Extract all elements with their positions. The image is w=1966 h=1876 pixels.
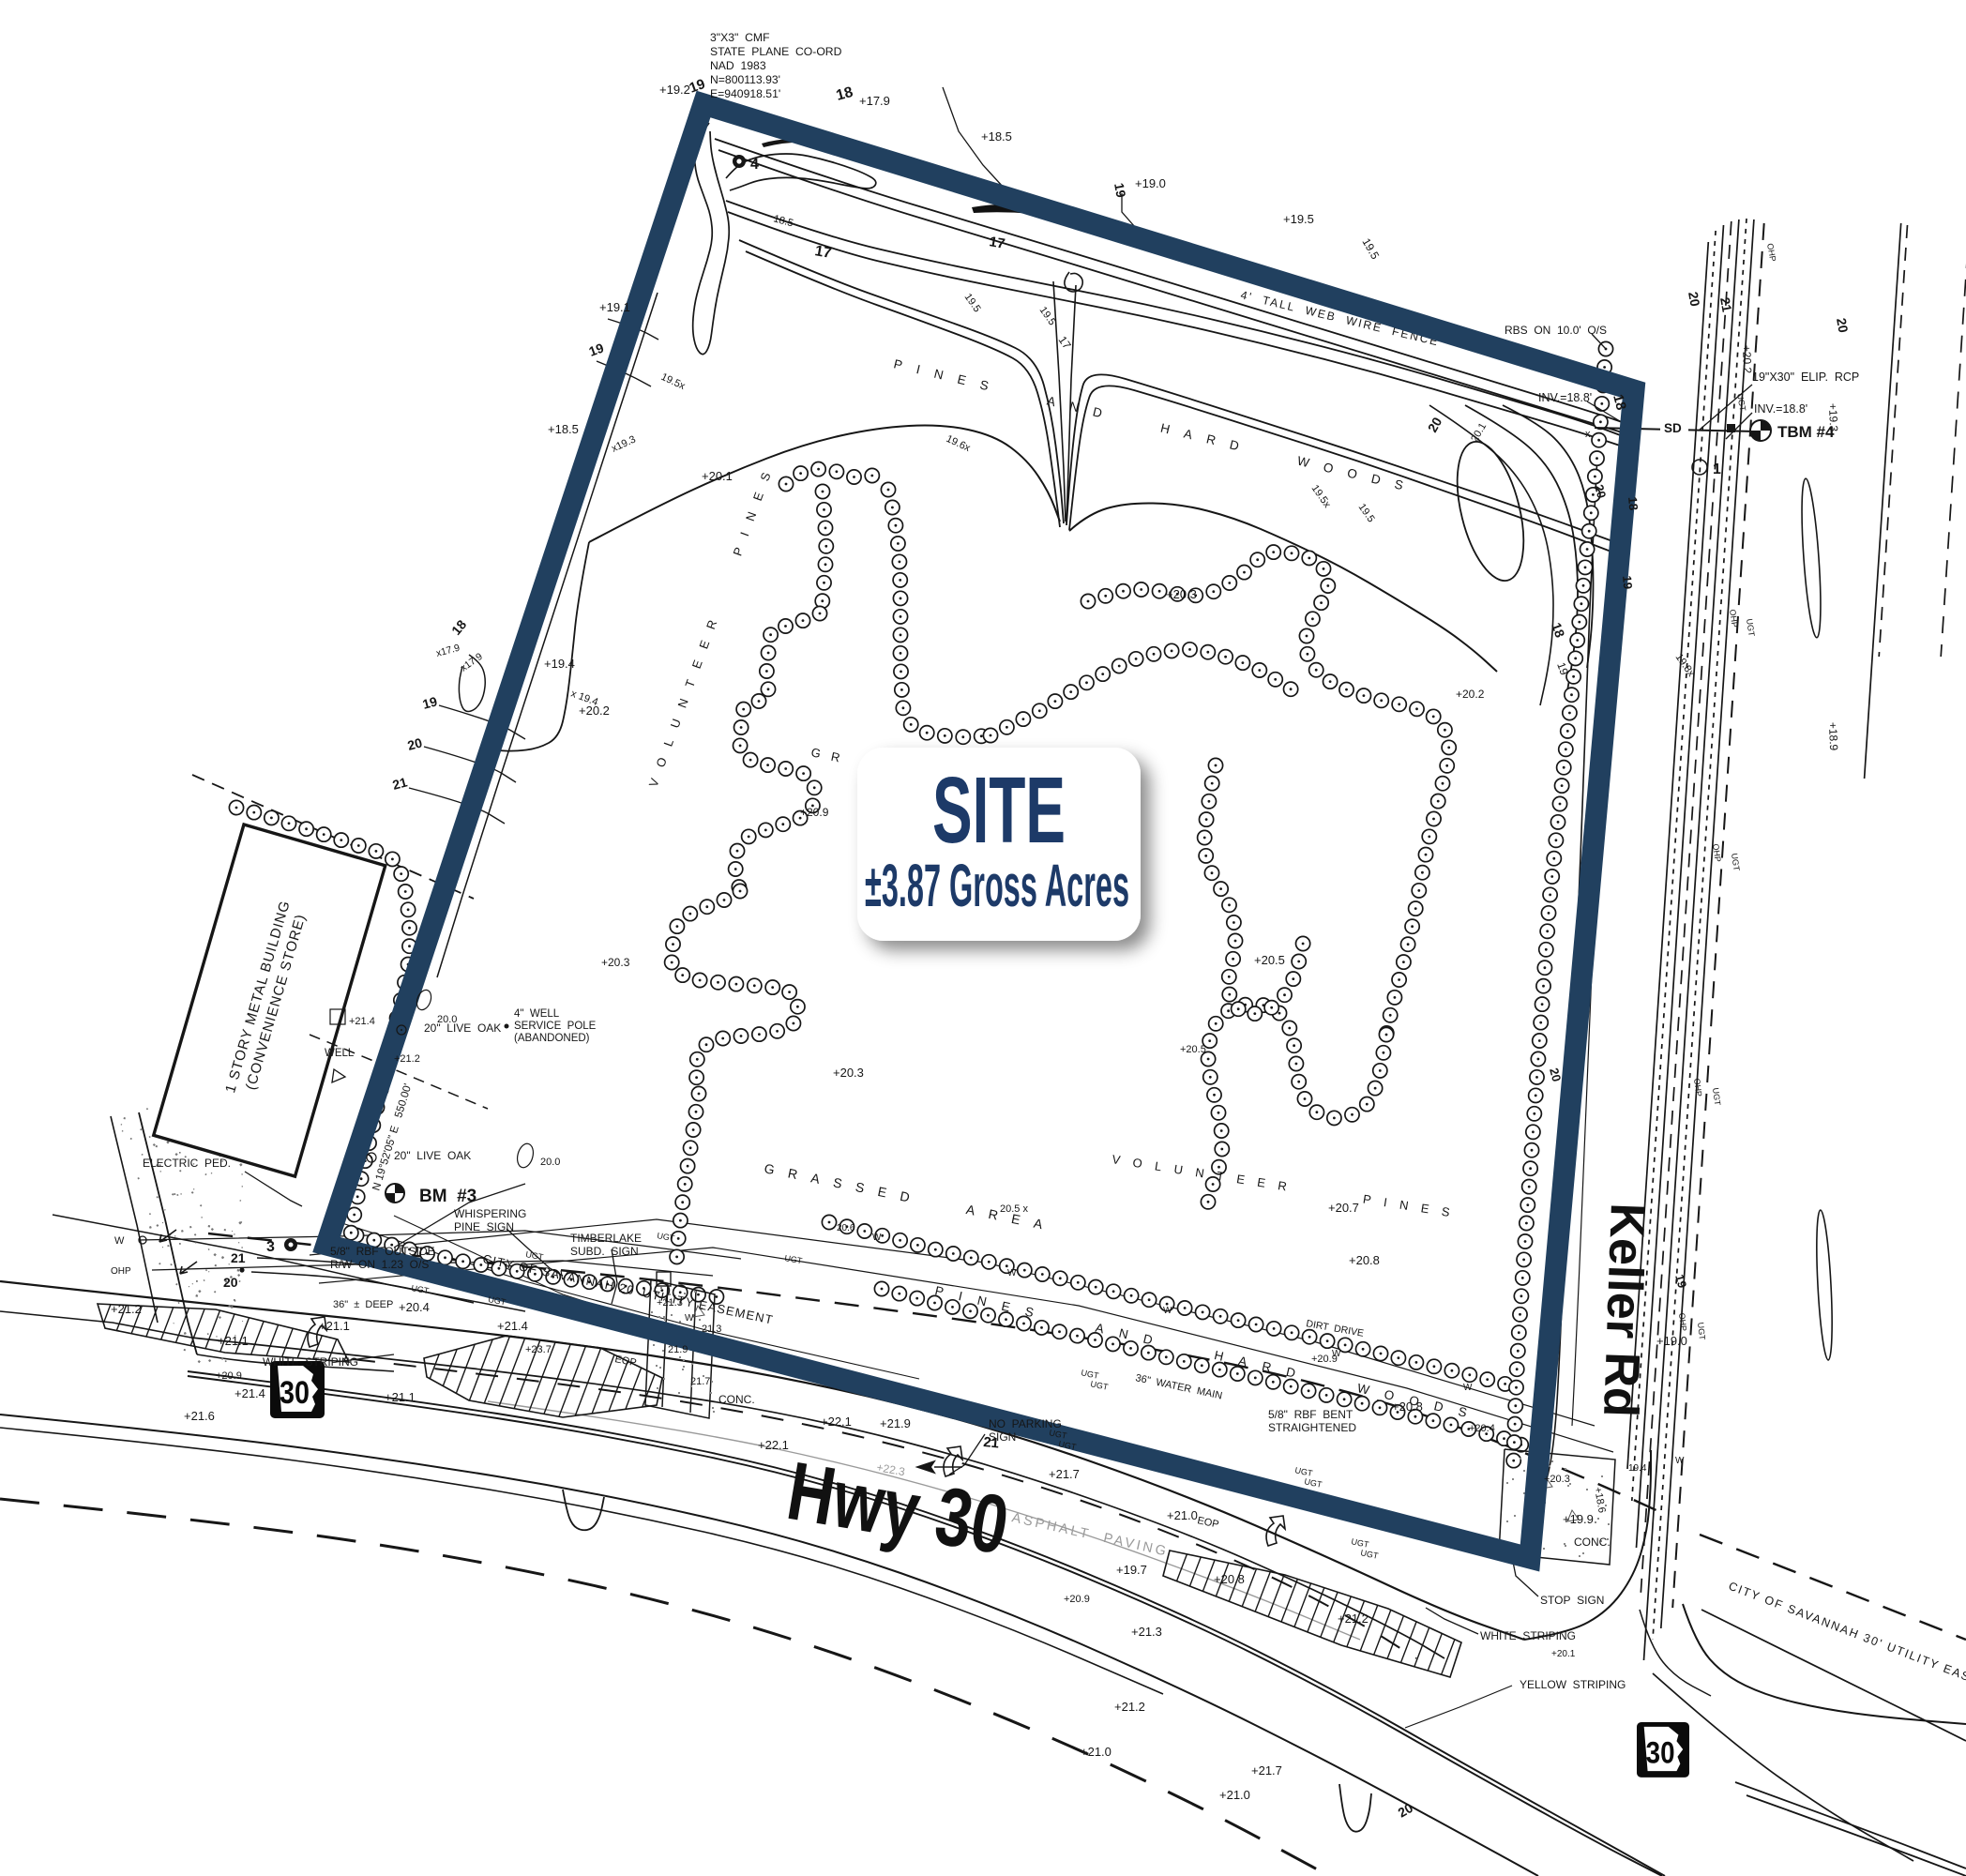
svg-text:+19.2: +19.2 [659, 83, 690, 97]
svg-text:21.7: 21.7 [690, 1376, 710, 1387]
svg-text:+20.3: +20.3 [833, 1066, 864, 1080]
svg-text:20.6: 20.6 [837, 1223, 855, 1233]
svg-text:+21.0: +21.0 [1167, 1508, 1198, 1522]
svg-text:+20.2: +20.2 [1740, 345, 1754, 374]
svg-text:ELECTRIC PED.: ELECTRIC PED. [143, 1157, 231, 1170]
svg-text:+19.3: +19.3 [1826, 403, 1840, 432]
svg-text:N=800113.93': N=800113.93' [710, 73, 780, 86]
svg-text:+20.3: +20.3 [1166, 587, 1197, 601]
svg-text:NAD 1983: NAD 1983 [710, 59, 766, 72]
svg-text:+20.8: +20.8 [1392, 1399, 1423, 1414]
svg-text:+21.4: +21.4 [497, 1319, 528, 1333]
svg-text:W: W [1463, 1383, 1473, 1393]
svg-text:20.0: 20.0 [437, 1014, 457, 1025]
svg-text:+18.5: +18.5 [981, 129, 1012, 144]
svg-text:YELLOW STRIPING: YELLOW STRIPING [1520, 1678, 1626, 1691]
svg-text:+21.2: +21.2 [1114, 1700, 1145, 1714]
svg-text:+21.1: +21.1 [319, 1319, 350, 1333]
svg-text:W: W [114, 1235, 125, 1247]
svg-text:+20.4: +20.4 [399, 1300, 430, 1314]
svg-text:CONC.: CONC. [718, 1393, 755, 1406]
svg-text:E=940918.51': E=940918.51' [710, 87, 780, 100]
svg-text:+20.9: +20.9 [1064, 1594, 1090, 1605]
svg-text:20.5 x: 20.5 x [1000, 1203, 1028, 1215]
svg-text:RBS ON 10.0' O/S: RBS ON 10.0' O/S [1505, 324, 1607, 337]
svg-text:+21.3: +21.3 [657, 1297, 683, 1309]
svg-text:W: W [1163, 1306, 1172, 1316]
svg-text:+19.7: +19.7 [1116, 1563, 1147, 1577]
svg-text:STATE PLANE CO-ORD: STATE PLANE CO-ORD [710, 45, 842, 58]
svg-text:19: 19 [1620, 575, 1635, 590]
svg-text:+20.7: +20.7 [1328, 1201, 1359, 1215]
svg-text:INV.=18.8': INV.=18.8' [1754, 402, 1807, 416]
svg-text:21.3: 21.3 [702, 1324, 721, 1335]
svg-text:+21.2: +21.2 [111, 1302, 142, 1316]
svg-text:+21.1: +21.1 [218, 1334, 249, 1348]
svg-text:5/8" RBF OUTSIDE: 5/8" RBF OUTSIDE [330, 1245, 435, 1258]
svg-text:+21.6: +21.6 [184, 1409, 215, 1423]
svg-text:+18.5: +18.5 [548, 422, 579, 436]
svg-text:+21.7: +21.7 [1049, 1467, 1080, 1481]
svg-text:+20.9: +20.9 [800, 806, 829, 819]
svg-text:±3.87 Gross Acres: ±3.87 Gross Acres [865, 852, 1129, 919]
svg-text:(ABANDONED): (ABANDONED) [514, 1033, 590, 1044]
svg-text:19"X30" ELIP. RCP: 19"X30" ELIP. RCP [1752, 371, 1859, 384]
svg-text:+19.4: +19.4 [544, 657, 575, 671]
svg-text:3: 3 [266, 1239, 275, 1255]
svg-text:17: 17 [988, 234, 1006, 252]
svg-text:4" WELL: 4" WELL [514, 1008, 560, 1020]
svg-text:17: 17 [813, 243, 833, 262]
svg-text:30: 30 [280, 1375, 310, 1411]
svg-text:36" ± DEEP: 36" ± DEEP [333, 1299, 393, 1310]
svg-text:21: 21 [1717, 296, 1734, 313]
svg-text:+20.1: +20.1 [1551, 1649, 1576, 1659]
svg-text:20.0: 20.0 [540, 1157, 560, 1168]
svg-text:+22.1: +22.1 [758, 1438, 789, 1452]
svg-text:19: 19 [1112, 182, 1128, 199]
svg-text:W: W [872, 1233, 882, 1243]
svg-text:TBM #4: TBM #4 [1777, 423, 1835, 441]
svg-text:SIGN: SIGN [989, 1430, 1016, 1444]
svg-text:PINE SIGN: PINE SIGN [454, 1220, 514, 1233]
svg-text:x: x [1585, 429, 1591, 440]
svg-text:20: 20 [223, 1275, 238, 1290]
svg-text:+21.0: +21.0 [1219, 1788, 1250, 1802]
svg-text:+22.1: +22.1 [821, 1415, 852, 1429]
svg-text:+18.9: +18.9 [1826, 722, 1840, 751]
svg-text:+21.4: +21.4 [234, 1386, 265, 1400]
svg-text:STRAIGHTENED: STRAIGHTENED [1268, 1421, 1356, 1434]
svg-text:1: 1 [1713, 461, 1721, 477]
svg-text:SERVICE POLE: SERVICE POLE [514, 1021, 597, 1032]
svg-text:30: 30 [1646, 1734, 1675, 1769]
svg-text:+21.2: +21.2 [394, 1053, 420, 1065]
svg-text:21.9: 21.9 [668, 1344, 688, 1355]
svg-text:3"X3" CMF: 3"X3" CMF [710, 31, 770, 44]
svg-text:20: 20 [1834, 317, 1851, 334]
svg-text:W: W [1332, 1349, 1341, 1359]
svg-text:+20.3: +20.3 [601, 956, 630, 969]
svg-text:WHISPERING: WHISPERING [454, 1207, 526, 1220]
svg-text:19.4: 19.4 [1628, 1463, 1647, 1474]
svg-text:+20.4: +20.4 [1469, 1423, 1495, 1434]
svg-text:TIMBERLAKE: TIMBERLAKE [570, 1232, 642, 1245]
svg-text:CONC.: CONC. [1574, 1536, 1611, 1549]
svg-text:21: 21 [231, 1250, 246, 1265]
svg-text:+20.8: +20.8 [1349, 1253, 1380, 1267]
svg-text:OHP: OHP [1677, 1312, 1688, 1331]
svg-text:+21.2: +21.2 [1338, 1611, 1369, 1626]
svg-text:R/W ON 1.23 O/S: R/W ON 1.23 O/S [330, 1258, 429, 1271]
svg-text:20: 20 [1686, 291, 1702, 308]
svg-text:+20.1: +20.1 [702, 469, 733, 483]
svg-text:+19.0: +19.0 [1656, 1334, 1687, 1348]
svg-text:+21.1: +21.1 [385, 1390, 416, 1404]
svg-text:20" LIVE OAK: 20" LIVE OAK [424, 1021, 501, 1035]
svg-text:+19.0: +19.0 [1135, 176, 1166, 190]
svg-text:+19.9: +19.9 [1563, 1512, 1594, 1526]
svg-text:+20.9: +20.9 [216, 1370, 242, 1382]
svg-text:+21.3: +21.3 [1131, 1625, 1162, 1639]
svg-text:+20.5: +20.5 [1254, 953, 1285, 967]
svg-text:STOP SIGN: STOP SIGN [1540, 1594, 1604, 1607]
svg-text:+19.1: +19.1 [599, 300, 630, 314]
svg-text:+19.5: +19.5 [1283, 212, 1314, 226]
svg-text:+21.0: +21.0 [1081, 1745, 1112, 1759]
svg-text:OHP: OHP [111, 1266, 131, 1277]
svg-text:SITE: SITE [932, 758, 1066, 863]
svg-text:W: W [1675, 1456, 1685, 1466]
svg-text:+20.5: +20.5 [1180, 1044, 1206, 1055]
svg-text:5/8" RBF BENT: 5/8" RBF BENT [1268, 1408, 1354, 1421]
svg-text:SUBD. SIGN: SUBD. SIGN [570, 1245, 639, 1258]
svg-text:+21.4: +21.4 [349, 1016, 375, 1027]
svg-text:UGT: UGT [1696, 1322, 1707, 1340]
svg-text:WHITE STRIPING: WHITE STRIPING [263, 1355, 358, 1369]
svg-text:+20.2: +20.2 [1456, 688, 1485, 701]
svg-text:18: 18 [1626, 496, 1641, 511]
svg-text:+20.3: +20.3 [1544, 1474, 1570, 1485]
svg-text:+21.7: +21.7 [1251, 1763, 1282, 1778]
svg-text:Keller Rd: Keller Rd [1593, 1203, 1655, 1418]
svg-text:+23.7: +23.7 [525, 1344, 552, 1355]
svg-text:SD: SD [1664, 421, 1682, 435]
svg-text:W: W [685, 1313, 694, 1324]
svg-text:W: W [1007, 1268, 1017, 1278]
svg-text:+17.9: +17.9 [859, 94, 890, 108]
svg-text:20" LIVE OAK: 20" LIVE OAK [394, 1149, 471, 1162]
svg-text:INV.=18.8': INV.=18.8' [1538, 391, 1592, 404]
svg-text:WHITE STRIPING: WHITE STRIPING [1480, 1629, 1576, 1642]
svg-text:+21.9: +21.9 [880, 1416, 911, 1430]
svg-text:WELL: WELL [325, 1048, 355, 1059]
svg-text:+20.8: +20.8 [1214, 1572, 1245, 1586]
